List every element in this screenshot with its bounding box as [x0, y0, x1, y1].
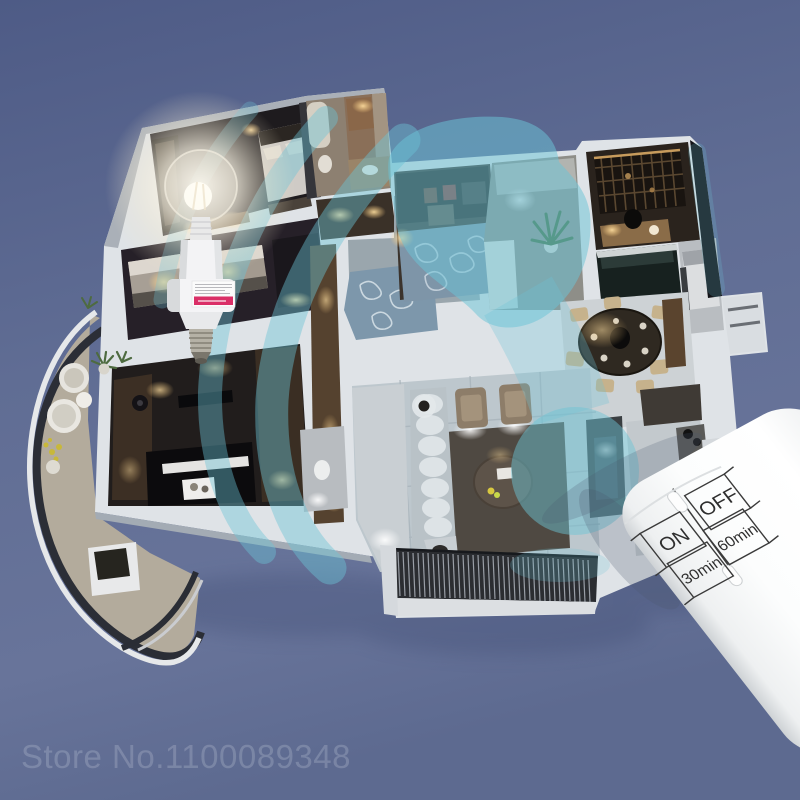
svg-text:Store No.1100089348: Store No.1100089348 — [21, 738, 351, 775]
